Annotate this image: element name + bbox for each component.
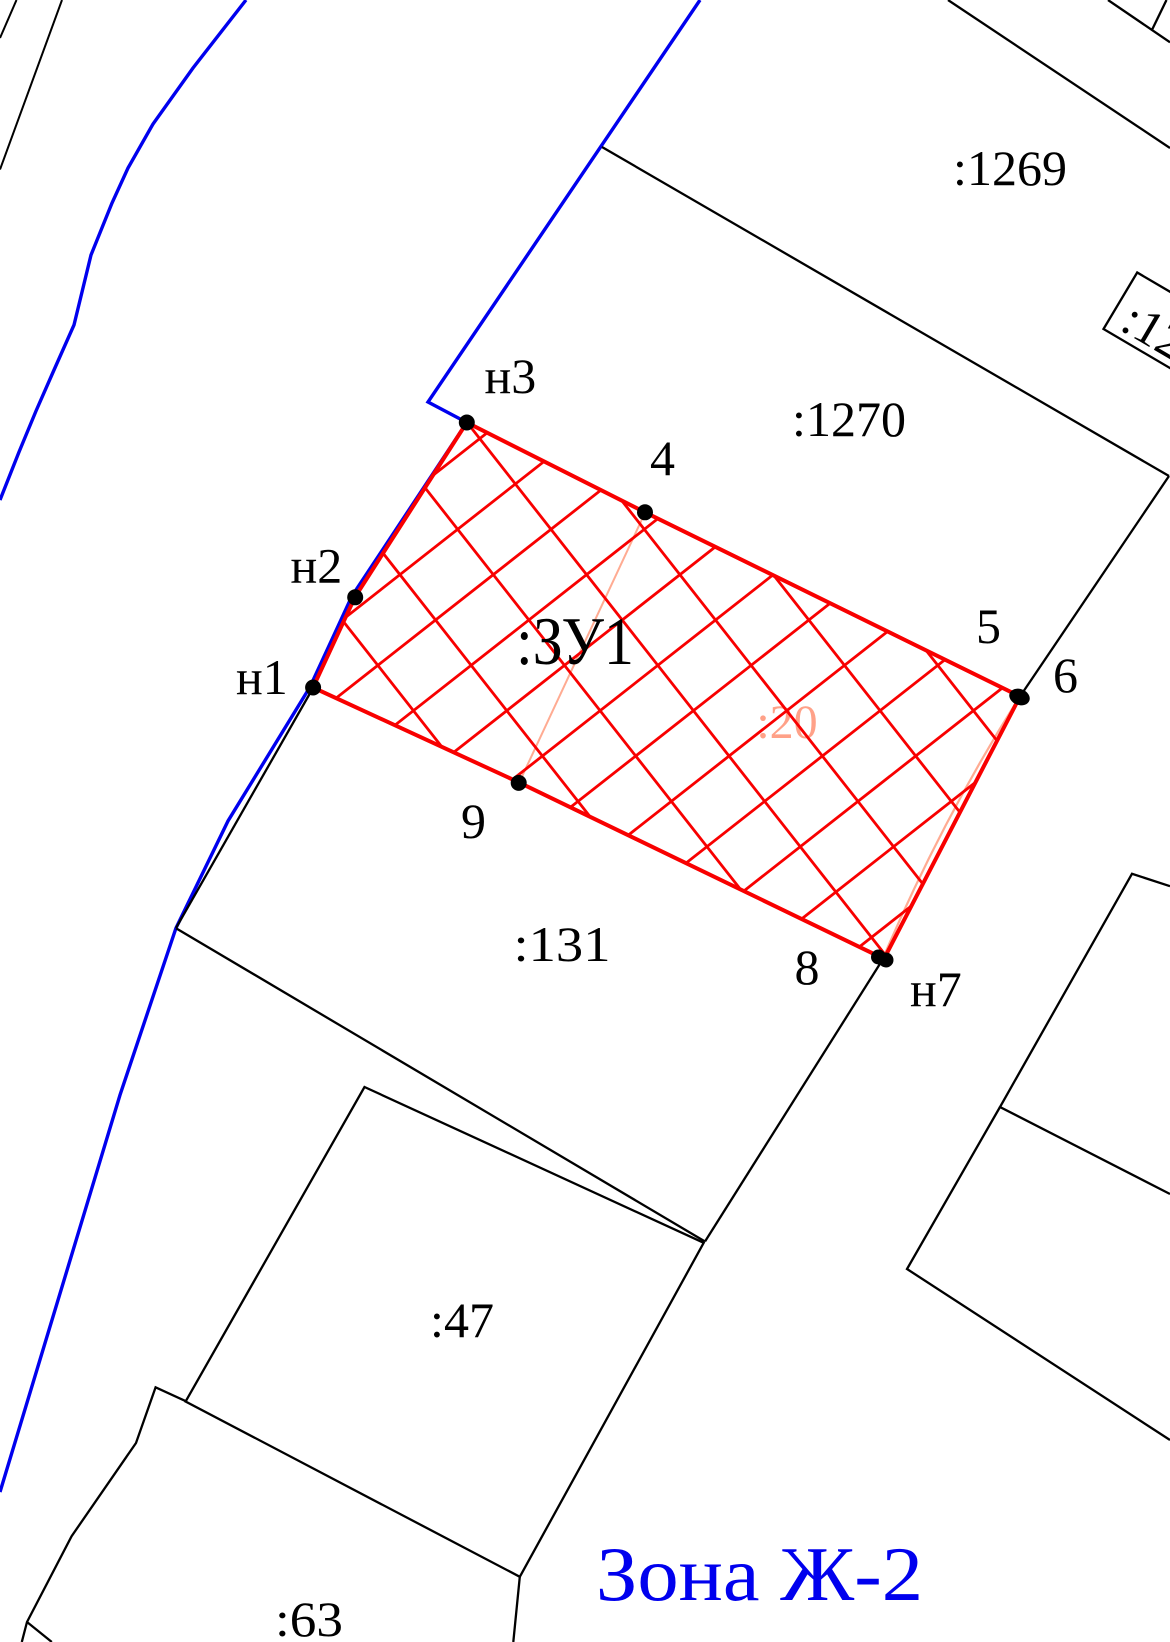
svg-text::47: :47 [430,1292,494,1348]
svg-text::1269: :1269 [953,140,1067,196]
svg-text:8: 8 [795,939,820,995]
svg-text:6: 6 [1053,647,1078,703]
svg-text::1270: :1270 [792,391,906,447]
svg-text:н2: н2 [291,538,343,594]
svg-text:Зона Ж-2: Зона Ж-2 [596,1531,923,1617]
svg-text::131: :131 [514,916,611,972]
svg-text:н7: н7 [910,961,962,1017]
svg-text:н3: н3 [485,348,537,404]
svg-text::63: :63 [275,1591,343,1642]
svg-text:4: 4 [650,430,675,486]
svg-text:н1: н1 [236,649,288,705]
svg-text:9: 9 [461,793,486,849]
svg-text::ЗУ1: :ЗУ1 [516,603,634,679]
svg-text:5: 5 [976,598,1001,654]
svg-text::20: :20 [756,696,817,749]
